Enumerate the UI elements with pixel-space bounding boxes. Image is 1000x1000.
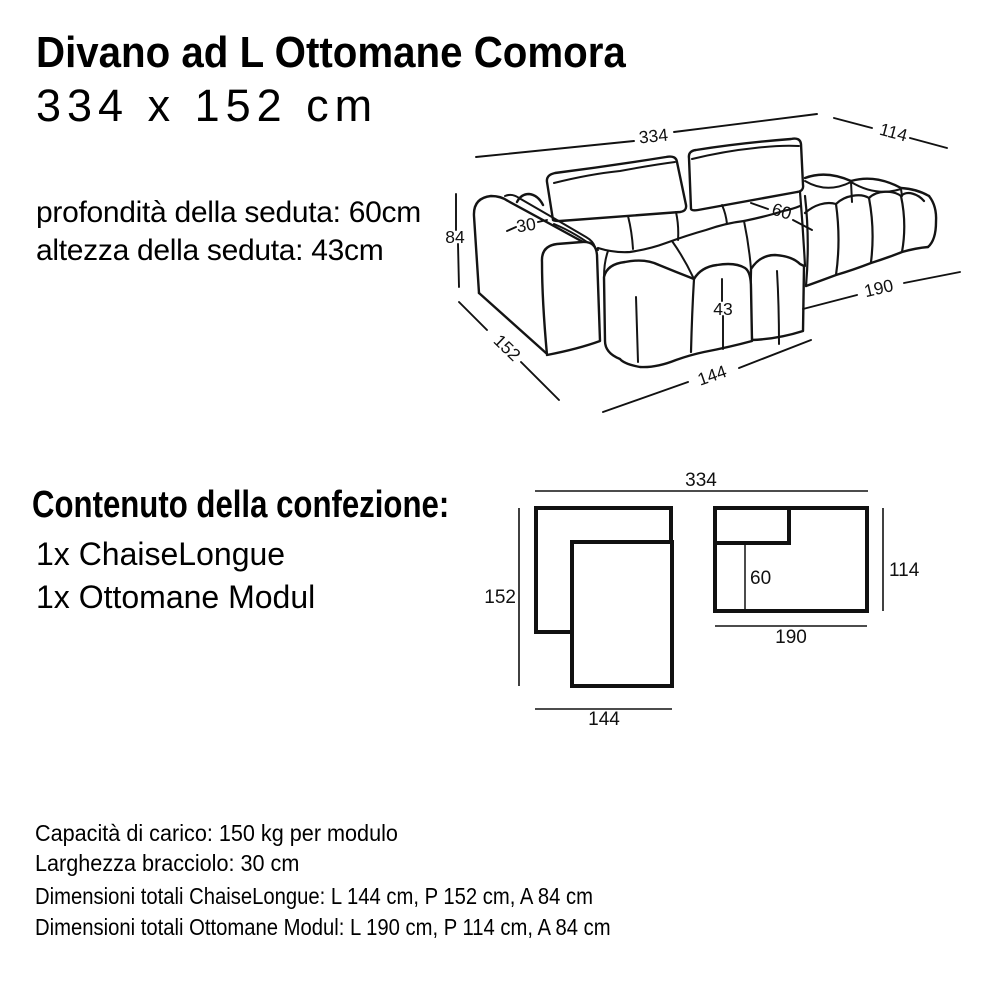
svg-text:144: 144: [588, 709, 620, 730]
svg-text:114: 114: [889, 560, 920, 581]
svg-text:152: 152: [484, 587, 516, 608]
svg-text:43: 43: [713, 299, 732, 319]
svg-text:334: 334: [685, 470, 717, 491]
svg-text:190: 190: [862, 275, 895, 301]
svg-text:30: 30: [515, 214, 538, 237]
svg-text:334: 334: [638, 125, 669, 148]
svg-text:152: 152: [490, 330, 525, 365]
svg-text:84: 84: [445, 227, 465, 247]
svg-text:190: 190: [775, 627, 807, 648]
svg-text:114: 114: [877, 119, 909, 146]
svg-text:60: 60: [750, 568, 771, 589]
svg-text:144: 144: [695, 361, 729, 390]
svg-text:60: 60: [770, 199, 795, 224]
